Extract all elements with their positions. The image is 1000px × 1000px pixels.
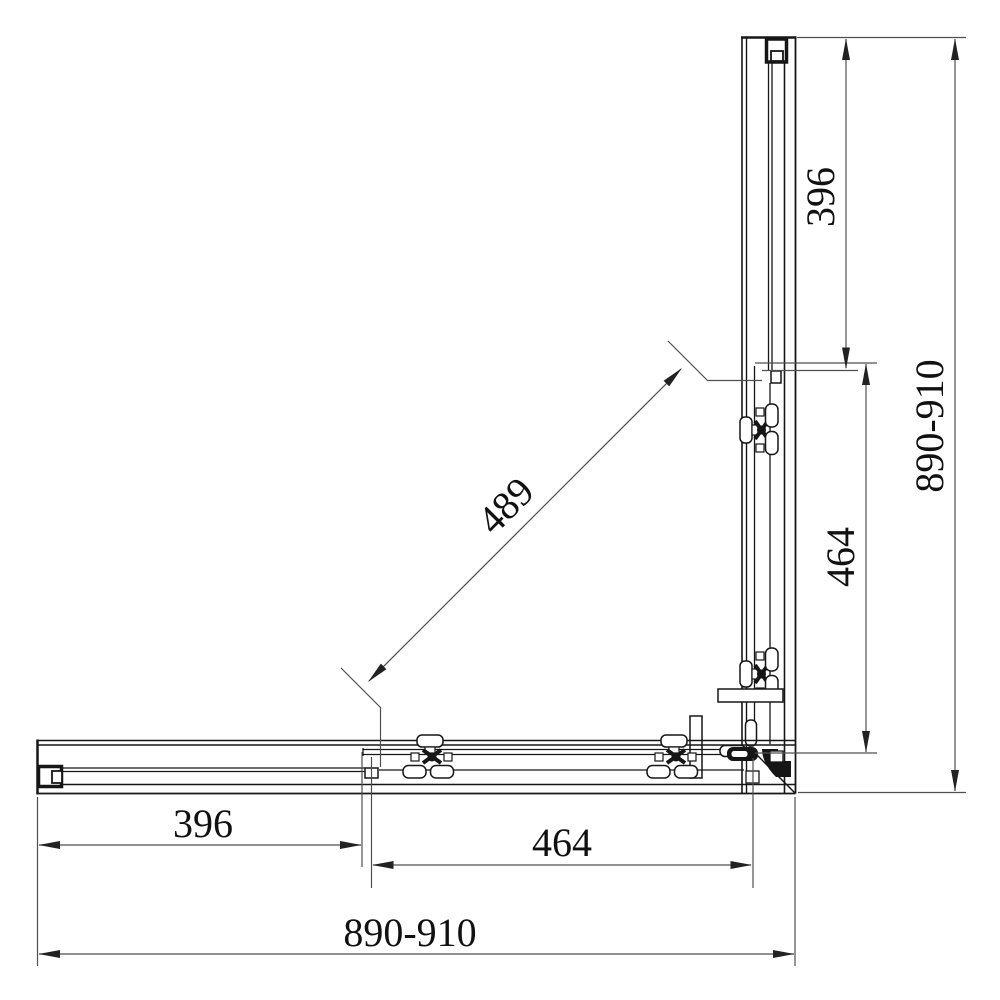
roller-nut bbox=[756, 444, 764, 452]
bottom-left-roller bbox=[403, 735, 454, 778]
dimension-label-right-464: 464 bbox=[818, 527, 863, 587]
roller-axle bbox=[757, 426, 766, 435]
roller-wheel bbox=[661, 735, 687, 747]
bottom-wall-bracket-notch bbox=[52, 771, 62, 783]
roller-nut bbox=[688, 753, 696, 761]
right-door-stopper bbox=[771, 371, 781, 383]
dimension-right-396: 396 bbox=[755, 38, 966, 371]
dimension-label-right-396: 396 bbox=[798, 167, 843, 227]
roller-wheel bbox=[417, 735, 443, 747]
right-rail-assembly bbox=[690, 38, 797, 794]
roller-nut bbox=[756, 652, 764, 660]
roller-wheel bbox=[740, 661, 752, 687]
shower-enclosure-plan-drawing: 396 464 890-910 396 464 bbox=[0, 0, 1000, 1000]
dimension-label-bottom-396: 396 bbox=[173, 801, 233, 846]
arrowhead-down bbox=[842, 348, 850, 370]
roller-pad bbox=[766, 648, 779, 671]
roller-wheel bbox=[740, 417, 752, 443]
dimension-label-right-overall: 890-910 bbox=[907, 359, 952, 492]
roller-pad bbox=[431, 766, 454, 779]
arrowhead-up bbox=[842, 39, 850, 61]
roller-pad bbox=[647, 766, 670, 779]
right-wall-bracket-notch bbox=[771, 51, 783, 61]
roller-pad bbox=[766, 432, 779, 455]
corner-bar-slot bbox=[731, 751, 748, 758]
arrowhead-up bbox=[951, 39, 959, 61]
right-corner-bracket-bar bbox=[718, 689, 783, 702]
arrowhead-left bbox=[39, 841, 61, 849]
arrowhead-right bbox=[773, 950, 795, 958]
arrowhead-down bbox=[951, 770, 959, 792]
arrowhead-left bbox=[372, 861, 394, 869]
arrowhead-up bbox=[862, 364, 870, 386]
roller-axle bbox=[672, 753, 681, 762]
right-upper-roller bbox=[740, 404, 778, 455]
right-door-end-cap bbox=[746, 720, 757, 746]
arrowhead-down bbox=[862, 731, 870, 753]
dimension-bottom-overall: 890-910 bbox=[39, 797, 796, 966]
roller-axle bbox=[757, 670, 766, 679]
dimension-diagonal-489: 489 bbox=[341, 341, 762, 767]
dimension-label-bottom-464: 464 bbox=[532, 820, 592, 865]
roller-pad bbox=[675, 766, 698, 779]
arrowhead-right bbox=[731, 861, 753, 869]
dimension-line bbox=[369, 369, 681, 681]
dimension-label-bottom-overall: 890-910 bbox=[343, 910, 476, 955]
roller-pad bbox=[403, 766, 426, 779]
roller-nut bbox=[444, 753, 452, 761]
bottom-rail-assembly bbox=[38, 735, 796, 795]
dimension-label-diagonal-489: 489 bbox=[468, 468, 542, 542]
roller-pad bbox=[766, 404, 779, 427]
arrowhead-right bbox=[340, 841, 362, 849]
roller-nut bbox=[756, 408, 764, 416]
roller-axle bbox=[428, 753, 437, 762]
roller-nut bbox=[411, 753, 419, 761]
arrowhead-left bbox=[39, 950, 61, 958]
drawing-canvas: 396 464 890-910 396 464 bbox=[0, 0, 1000, 1000]
dimension-right-overall: 890-910 bbox=[798, 39, 966, 793]
roller-nut bbox=[655, 753, 663, 761]
